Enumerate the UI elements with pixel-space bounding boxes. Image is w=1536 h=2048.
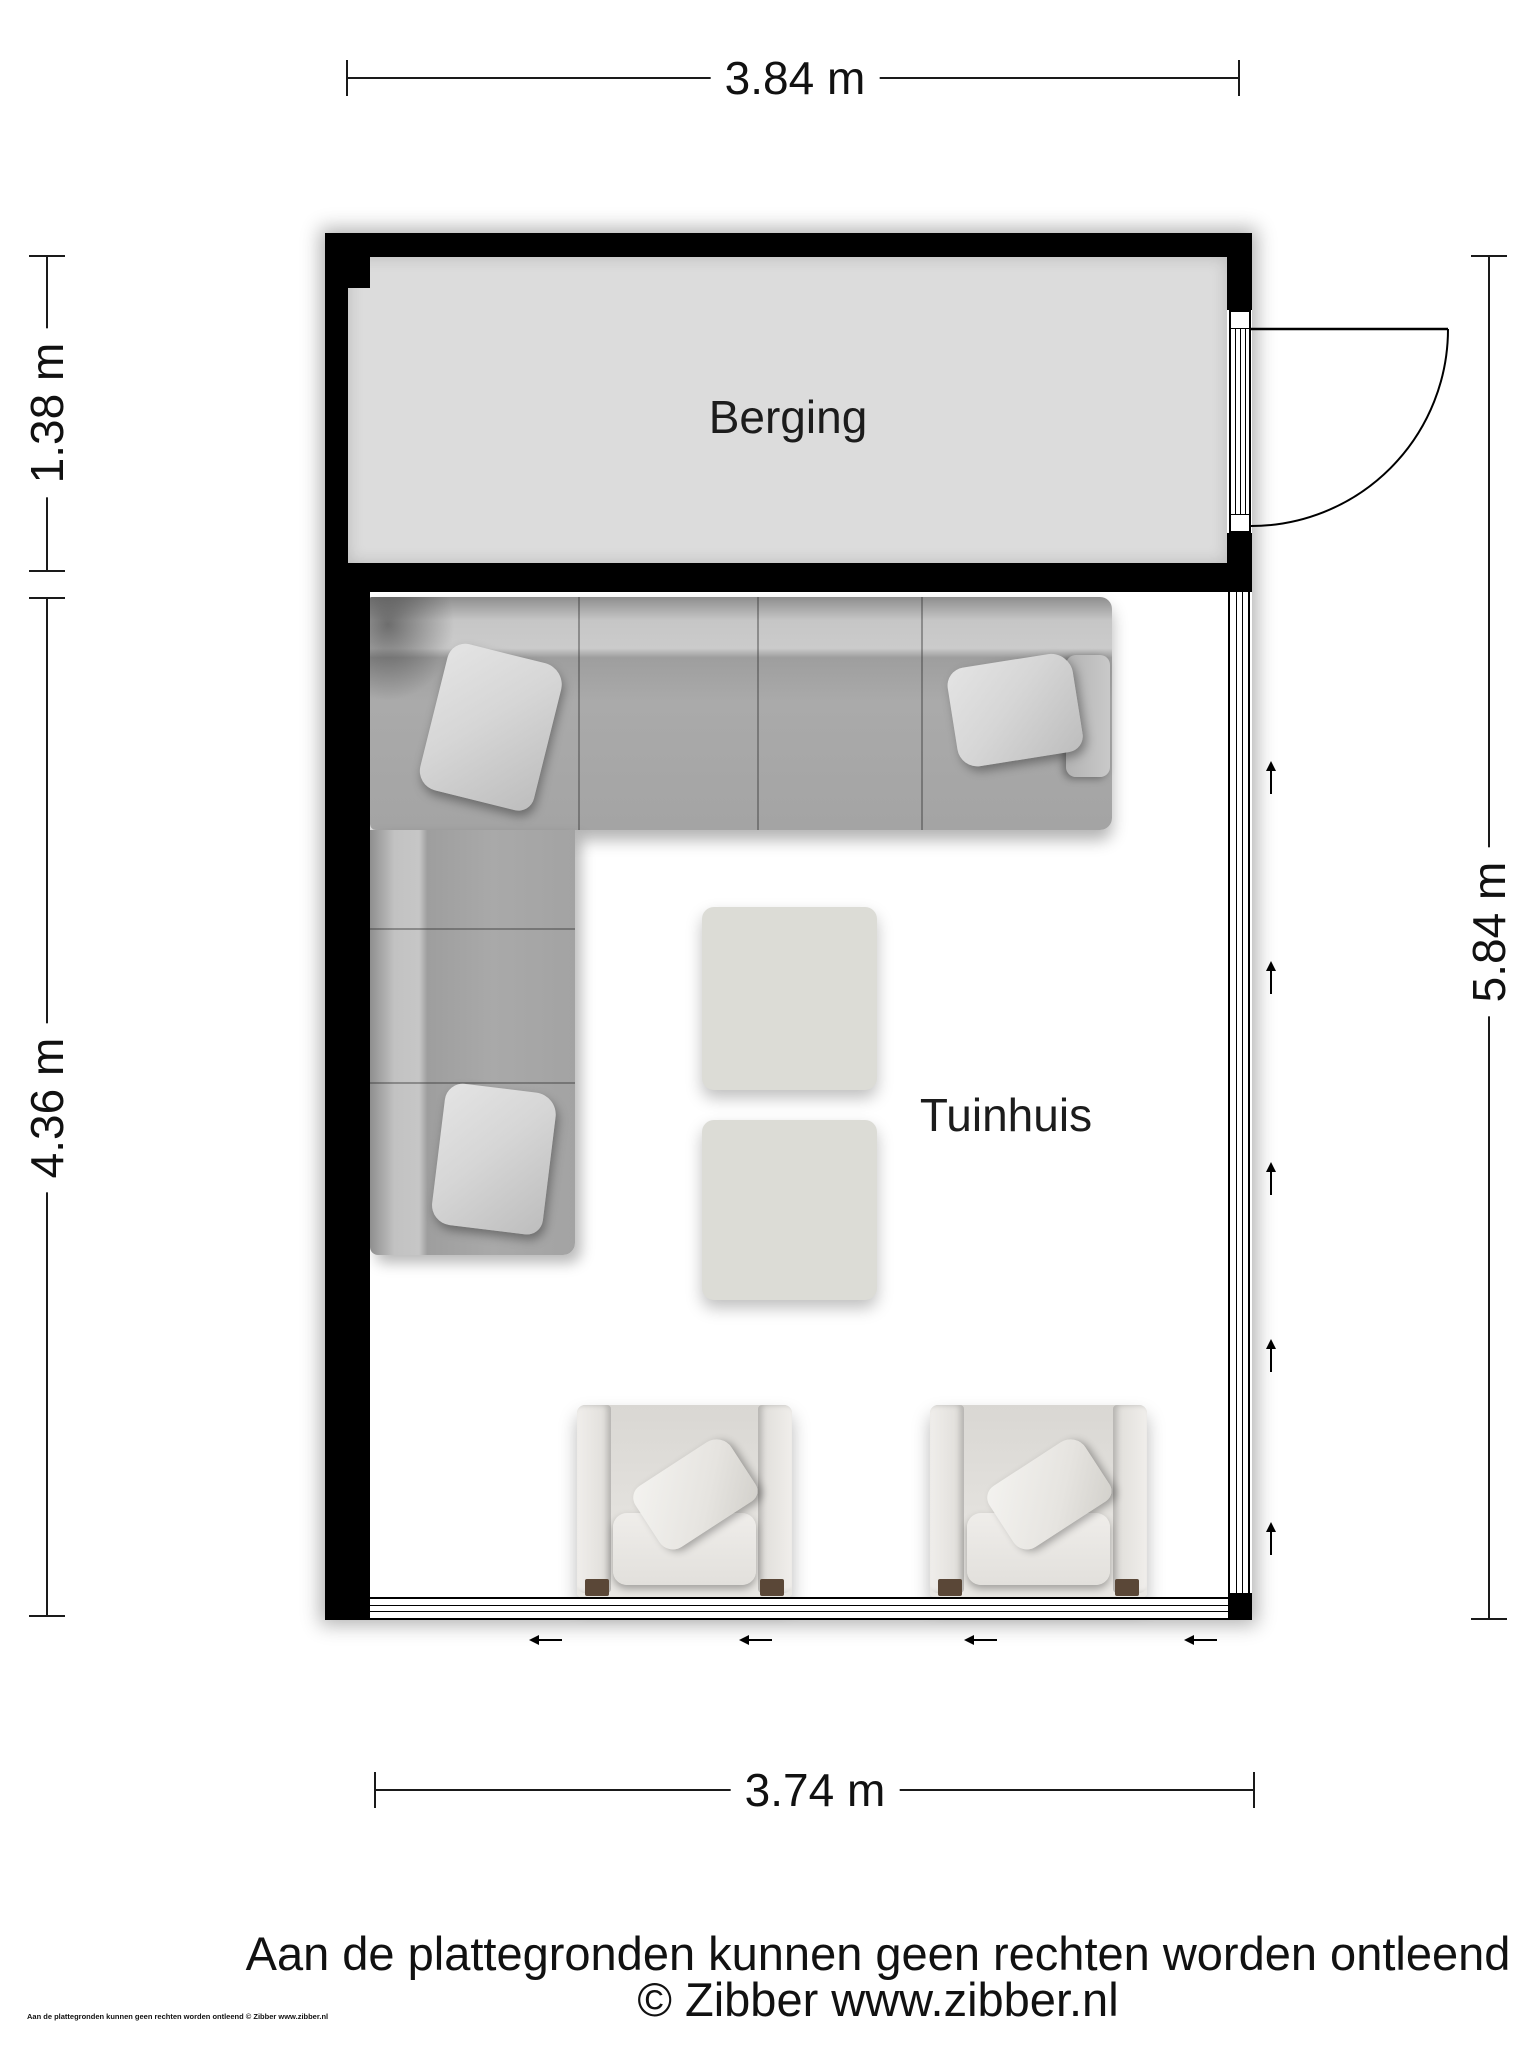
tuinhuis-left-wall: [325, 592, 370, 1620]
window-glazing-line: [370, 1611, 1228, 1612]
window-glazing-line: [370, 1605, 1228, 1606]
arrow-up-icon: [1270, 1531, 1272, 1555]
dim-tick: [29, 1615, 65, 1617]
tuinhuis-right-window: [1228, 592, 1250, 1593]
dim-label-top: 3.84 m: [711, 51, 880, 105]
tuinhuis-bottom-window: [370, 1597, 1228, 1620]
arrow-left-icon: [973, 1639, 997, 1641]
dim-tick: [1471, 255, 1507, 257]
armchair-foot: [585, 1579, 609, 1596]
dim-tick: [1238, 60, 1240, 96]
armchair: [930, 1405, 1147, 1597]
dim-tick: [29, 255, 65, 257]
sofa-seam: [757, 597, 759, 830]
sofa-seam: [578, 597, 580, 830]
coffee-table: [702, 907, 877, 1090]
window-glazing-line: [1242, 592, 1243, 1593]
berging-bottom-wall: [325, 563, 1252, 592]
arrow-up-icon: [1270, 970, 1272, 994]
arrow-left-icon: [1193, 1639, 1217, 1641]
arrow-left-icon: [748, 1639, 772, 1641]
armchair-right-arm: [758, 1405, 792, 1593]
dim-label-left-upper: 1.38 m: [20, 329, 74, 498]
tuinhuis-bottom-right-corner: [1228, 1593, 1252, 1620]
sofa-seam: [370, 928, 575, 930]
coffee-table: [702, 1120, 877, 1300]
berging-left-wall: [325, 233, 348, 592]
door-glazing-line: [1245, 329, 1246, 514]
footer-copyright: © Zibber www.zibber.nl: [218, 1972, 1536, 2027]
arrow-left-icon: [538, 1639, 562, 1641]
dim-tick: [1253, 1772, 1255, 1808]
armchair-foot: [760, 1579, 784, 1596]
dim-tick: [1471, 1618, 1507, 1620]
armchair-left-arm: [577, 1405, 611, 1593]
dim-label-bottom: 3.74 m: [731, 1763, 900, 1817]
dim-label-right: 5.84 m: [1462, 848, 1516, 1017]
berging-door-swing-icon: [1251, 310, 1461, 540]
footer-small-print: Aan de plattegronden kunnen geen rechten…: [27, 2012, 328, 2021]
armchair-foot: [938, 1579, 962, 1596]
armchair-right-arm: [1113, 1405, 1147, 1593]
dim-tick: [374, 1772, 376, 1808]
dim-tick: [346, 60, 348, 96]
sofa-seam: [921, 597, 923, 830]
armchair-left-arm: [930, 1405, 964, 1593]
window-glazing-line: [1236, 592, 1237, 1593]
berging-right-wall-upper: [1227, 233, 1252, 310]
sofa-pillow: [430, 1082, 558, 1237]
dim-tick: [29, 597, 65, 599]
room-label-tuinhuis: Tuinhuis: [856, 1088, 1156, 1142]
armchair-foot: [1115, 1579, 1139, 1596]
armchair: [577, 1405, 792, 1597]
berging-top-wall: [325, 233, 1252, 257]
sofa-pillow: [945, 651, 1085, 769]
arrow-up-icon: [1270, 1171, 1272, 1195]
dim-label-left-lower: 4.36 m: [20, 1024, 74, 1193]
door-glazing-line: [1240, 329, 1241, 514]
arrow-up-icon: [1270, 1348, 1272, 1372]
room-label-berging: Berging: [638, 390, 938, 444]
dim-tick: [29, 570, 65, 572]
arrow-up-icon: [1270, 770, 1272, 794]
door-glazing-line: [1235, 329, 1236, 514]
door-jamb-bottom-line: [1231, 514, 1249, 515]
berging-corner-notch: [348, 257, 370, 288]
berging-door-frame: [1229, 310, 1251, 533]
sofa-seam: [370, 1082, 575, 1084]
floorplan-page: Berging Tuinhuis 3.84 m 1.38 m 4.36 m 5.…: [0, 0, 1536, 2048]
